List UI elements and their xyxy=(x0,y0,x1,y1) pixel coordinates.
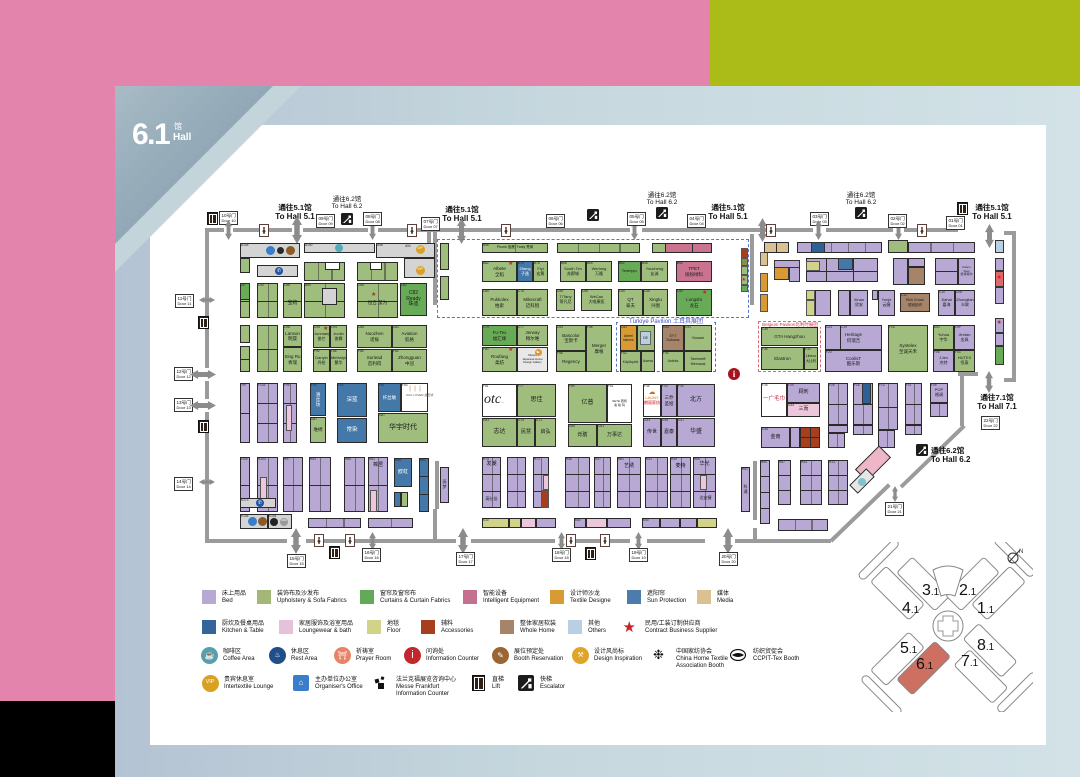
svg-text:N: N xyxy=(1019,549,1023,555)
